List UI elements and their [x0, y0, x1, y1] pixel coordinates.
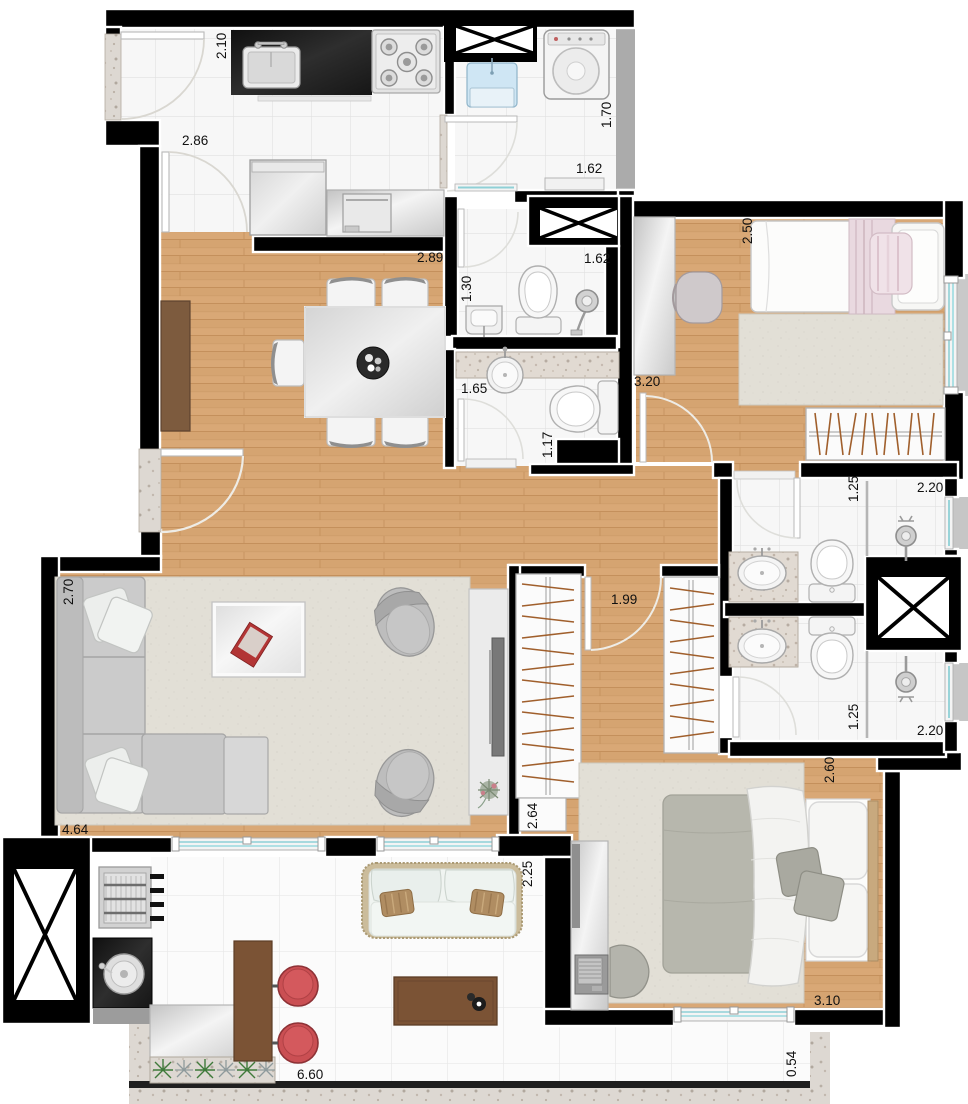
svg-text:2.25: 2.25	[520, 861, 535, 887]
svg-text:2.20: 2.20	[917, 723, 943, 738]
svg-text:1.25: 1.25	[846, 704, 861, 730]
svg-text:1.30: 1.30	[459, 276, 474, 302]
svg-text:1.62: 1.62	[576, 161, 602, 176]
svg-text:0.54: 0.54	[784, 1050, 799, 1077]
svg-text:2.89: 2.89	[417, 250, 443, 265]
svg-text:2.64: 2.64	[525, 802, 540, 829]
svg-text:2.60: 2.60	[822, 757, 837, 783]
svg-text:2.50: 2.50	[740, 218, 755, 244]
svg-text:1.62: 1.62	[584, 251, 610, 266]
svg-text:1.70: 1.70	[599, 102, 614, 128]
svg-text:1.65: 1.65	[461, 381, 487, 396]
svg-text:3.10: 3.10	[814, 993, 840, 1008]
svg-text:1.99: 1.99	[611, 592, 637, 607]
svg-text:2.70: 2.70	[61, 579, 76, 605]
svg-text:6.60: 6.60	[297, 1067, 323, 1082]
svg-text:2.10: 2.10	[214, 33, 229, 59]
svg-text:2.86: 2.86	[182, 133, 208, 148]
svg-text:2.20: 2.20	[917, 480, 943, 495]
svg-text:4.64: 4.64	[62, 822, 89, 837]
svg-text:3.20: 3.20	[634, 374, 660, 389]
svg-text:1.17: 1.17	[540, 432, 555, 458]
svg-text:1.25: 1.25	[846, 476, 861, 502]
